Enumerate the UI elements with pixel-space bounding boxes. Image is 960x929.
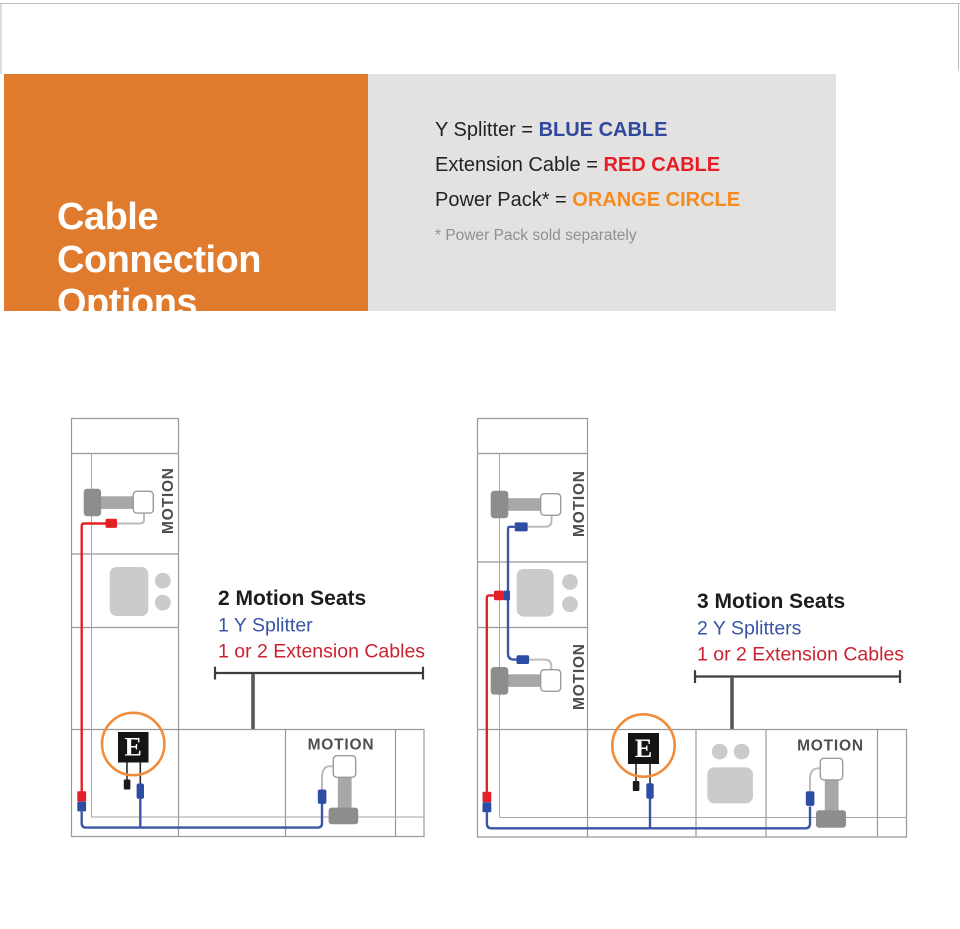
blue-connector (515, 522, 528, 531)
motion-label: MOTION (308, 737, 375, 754)
motion-label: MOTION (571, 470, 588, 537)
page-border (0, 4, 960, 75)
diagram-3-motion-seats: E MOTION MOTION MOTION 3 Motion Seats 2 … (478, 419, 907, 838)
red-connector (106, 519, 118, 528)
cable-connection-infographic: Cable Connection Options Y Splitter = BL… (0, 0, 960, 929)
diagram-2-motion-seats: E MOTION MOTION 2 Motion Seats 1 Y Split… (72, 419, 426, 837)
recliner-actuator-icon (816, 758, 846, 827)
diagram-heading: 3 Motion Seats (697, 590, 845, 613)
recliner-actuator-icon (329, 756, 359, 824)
blue-connector (517, 655, 530, 664)
power-pack-badge: E (102, 713, 164, 799)
y-splitter-cable-blue (77, 790, 326, 828)
caption-bracket (695, 670, 900, 729)
blue-connector (806, 791, 815, 806)
blue-plug (646, 783, 653, 798)
black-plug (124, 780, 131, 790)
extension-count-label: 1 or 2 Extension Cables (697, 644, 904, 666)
extension-cable-red (483, 591, 504, 803)
diagram-canvas: E MOTION MOTION 2 Motion Seats 1 Y Split… (0, 0, 960, 929)
power-entry-letter: E (125, 733, 142, 762)
power-entry-letter: E (635, 734, 652, 763)
caption-bracket (215, 667, 423, 729)
console-cupholders-icon (110, 567, 171, 616)
recliner-actuator-icon (84, 489, 154, 517)
blue-plug (137, 784, 144, 799)
diagram-heading: 2 Motion Seats (218, 587, 366, 610)
black-plug (633, 781, 640, 791)
console-cupholders-icon (707, 744, 753, 804)
red-connector (494, 591, 504, 601)
power-pack-badge: E (612, 714, 674, 798)
recliner-actuator-icon (491, 667, 561, 695)
motion-label: MOTION (160, 467, 177, 534)
splitter-count-label: 2 Y Splitters (697, 618, 802, 640)
blue-connector (483, 802, 492, 812)
blue-connector (504, 591, 510, 601)
recliner-actuator-icon (491, 491, 561, 519)
motion-label: MOTION (797, 738, 864, 755)
extension-cable-red (77, 519, 117, 802)
splitter-count-label: 1 Y Splitter (218, 615, 313, 637)
red-connector (77, 791, 86, 801)
blue-connector (318, 790, 327, 804)
extension-count-label: 1 or 2 Extension Cables (218, 641, 425, 663)
red-connector (483, 792, 492, 802)
console-cupholders-icon (517, 569, 578, 617)
blue-connector (77, 802, 86, 812)
motion-label: MOTION (571, 643, 588, 710)
